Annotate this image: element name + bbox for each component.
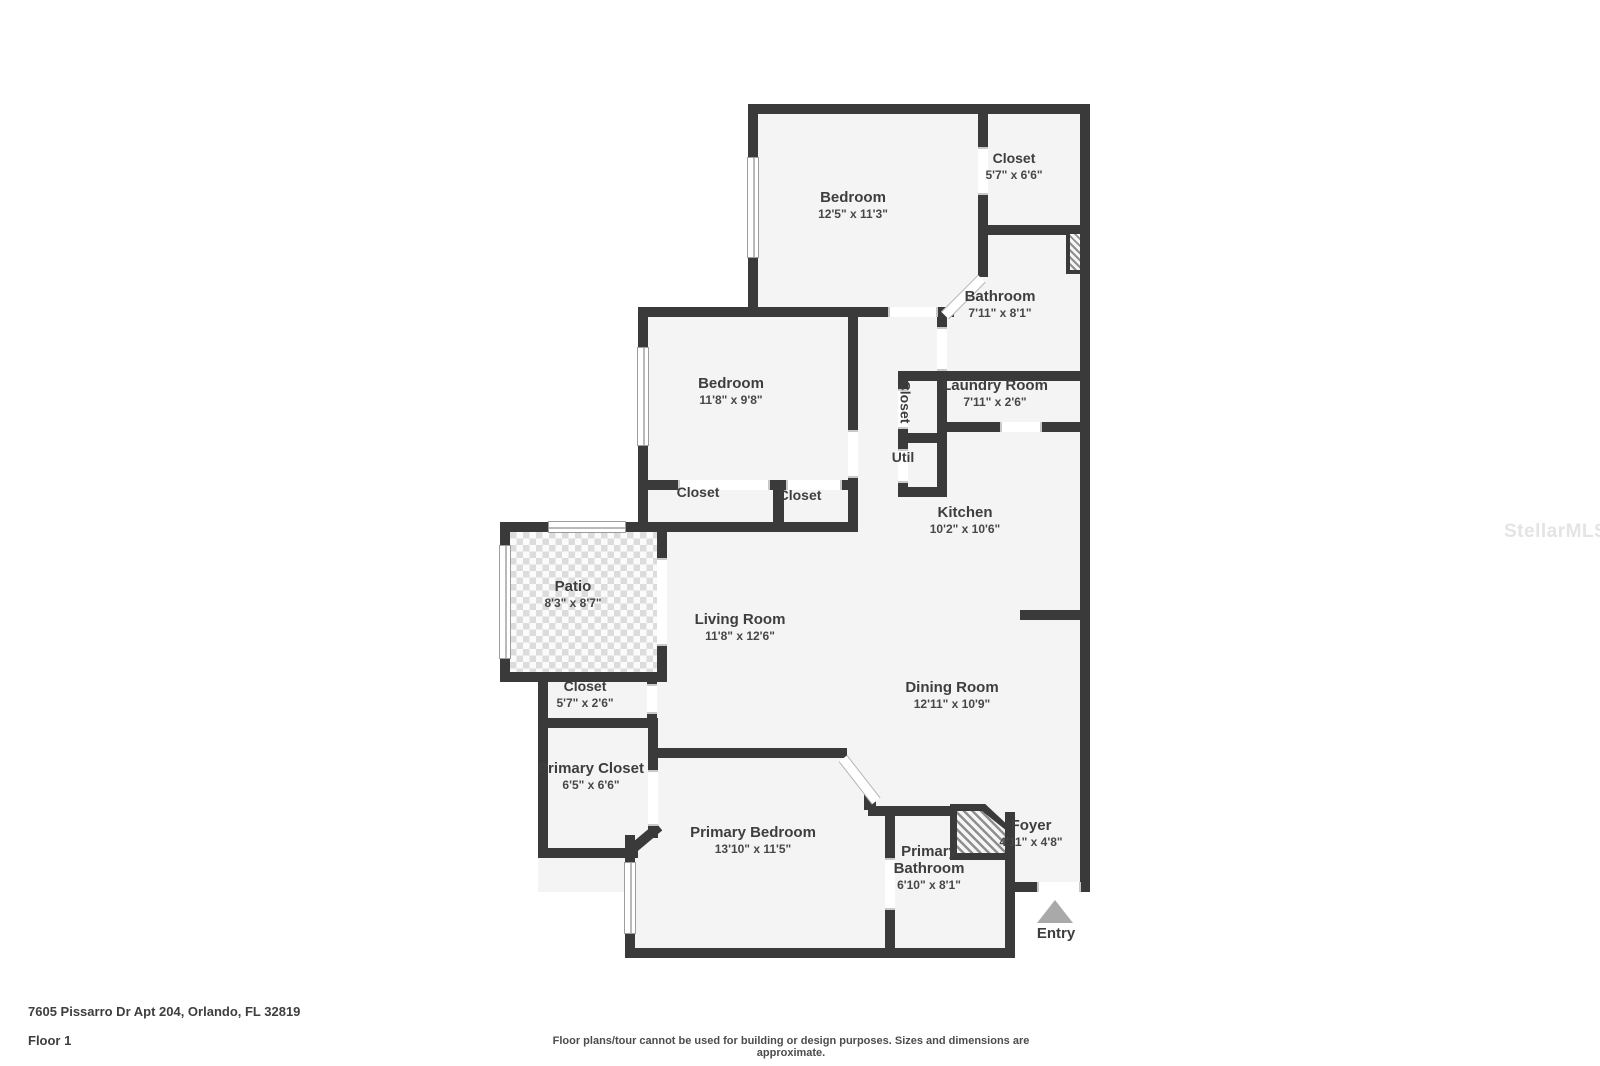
wall-segment bbox=[868, 806, 958, 816]
room-label-bedroom-top: Bedroom 12'5" x 11'3" bbox=[818, 189, 888, 222]
room-fill bbox=[748, 104, 1090, 317]
door-opening bbox=[848, 430, 858, 478]
window bbox=[747, 157, 759, 258]
wall-segment bbox=[638, 522, 858, 532]
floor-plan-page: Entry Bedroom 12'5" x 11'3" Closet 5'7" … bbox=[0, 0, 1600, 1066]
wall-segment bbox=[538, 718, 658, 728]
wall-segment bbox=[748, 104, 1090, 114]
room-label-bedroom-mid: Bedroom 11'8" x 9'8" bbox=[698, 375, 764, 408]
sliding-door-opening bbox=[657, 558, 667, 646]
room-label-closet-entry: Closet 5'7" x 2'6" bbox=[556, 678, 613, 711]
door-opening bbox=[937, 327, 947, 371]
door-opening bbox=[647, 684, 657, 714]
wall-segment bbox=[657, 748, 840, 758]
window bbox=[499, 545, 511, 659]
window bbox=[624, 862, 636, 934]
disclaimer-text: Floor plans/tour cannot be used for buil… bbox=[550, 1035, 1032, 1059]
floor-label: Floor 1 bbox=[28, 1033, 71, 1048]
wall-segment bbox=[978, 235, 988, 277]
entry-arrow-icon bbox=[1037, 900, 1073, 923]
address-text: 7605 Pissarro Dr Apt 204, Orlando, FL 32… bbox=[28, 1004, 300, 1019]
entry-label: Entry bbox=[1037, 925, 1075, 942]
room-label-closet-hall: Closet bbox=[897, 381, 914, 424]
wall-segment bbox=[848, 307, 858, 532]
room-label-closet-a: Closet bbox=[677, 484, 720, 501]
room-label-closet-b: Closet bbox=[779, 487, 822, 504]
room-label-kitchen: Kitchen 10'2" x 10'6" bbox=[930, 504, 1000, 537]
room-label-primary-bathroom: Primary Bathroom 6'10" x 8'1" bbox=[879, 843, 979, 893]
room-label-laundry: Laundry Room 7'11" x 2'6" bbox=[942, 377, 1048, 410]
room-label-foyer: Foyer 4'11" x 4'8" bbox=[999, 817, 1062, 850]
room-label-living: Living Room 11'8" x 12'6" bbox=[695, 611, 786, 644]
wall-segment bbox=[1020, 610, 1090, 620]
wall-segment bbox=[538, 848, 638, 858]
wall-segment bbox=[1080, 104, 1090, 892]
entry-door-opening bbox=[1037, 882, 1081, 892]
room-label-bathroom: Bathroom 7'11" x 8'1" bbox=[965, 288, 1036, 321]
hatched-fixture bbox=[1066, 230, 1084, 274]
wall-segment bbox=[625, 948, 1015, 958]
wall-segment bbox=[898, 433, 947, 443]
room-label-closet-top: Closet 5'7" x 6'6" bbox=[985, 150, 1042, 183]
wall-segment bbox=[898, 487, 947, 497]
window bbox=[548, 521, 626, 533]
window bbox=[637, 347, 649, 446]
room-label-primary-closet: Primary Closet 6'5" x 6'6" bbox=[538, 760, 644, 793]
door-opening bbox=[888, 307, 938, 317]
door-opening bbox=[648, 770, 658, 826]
room-label-primary-bedroom: Primary Bedroom 13'10" x 11'5" bbox=[690, 824, 816, 857]
room-label-dining: Dining Room 12'11" x 10'9" bbox=[905, 679, 998, 712]
wall-segment bbox=[1015, 882, 1037, 892]
room-label-util: Util bbox=[892, 449, 915, 466]
room-label-patio: Patio 8'3" x 8'7" bbox=[544, 578, 601, 611]
door-opening bbox=[1000, 422, 1042, 432]
watermark: StellarMLS bbox=[1504, 521, 1600, 543]
